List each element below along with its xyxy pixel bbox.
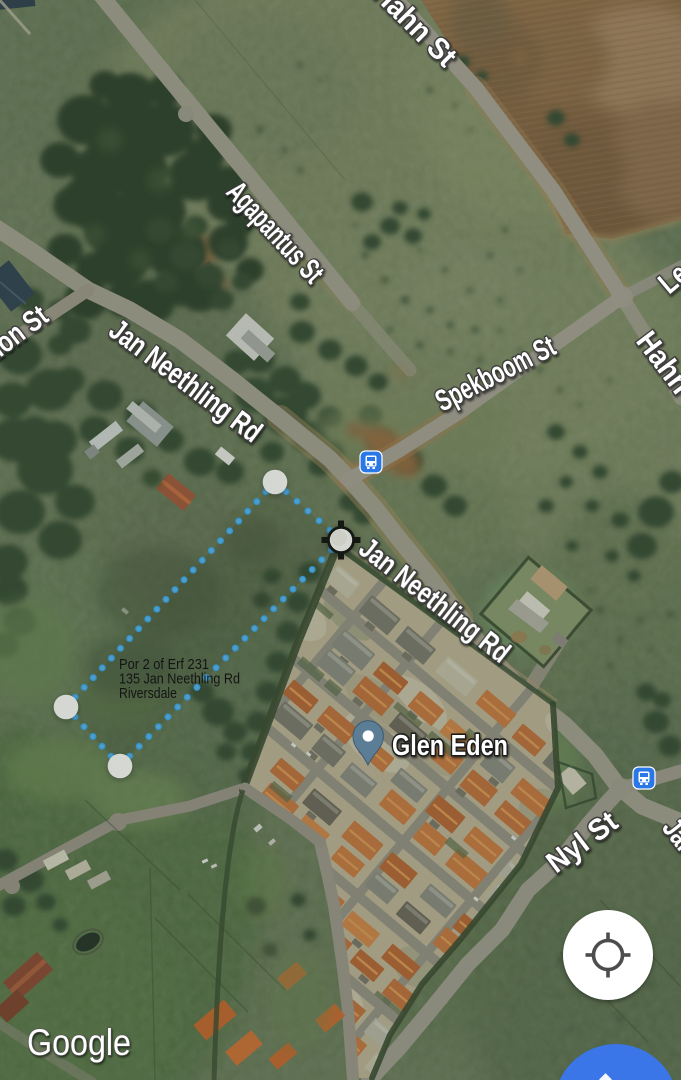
svg-text:Riversdale: Riversdale	[119, 685, 177, 702]
svg-text:Google: Google	[27, 1022, 131, 1063]
svg-text:Glen Eden: Glen Eden	[392, 730, 508, 762]
